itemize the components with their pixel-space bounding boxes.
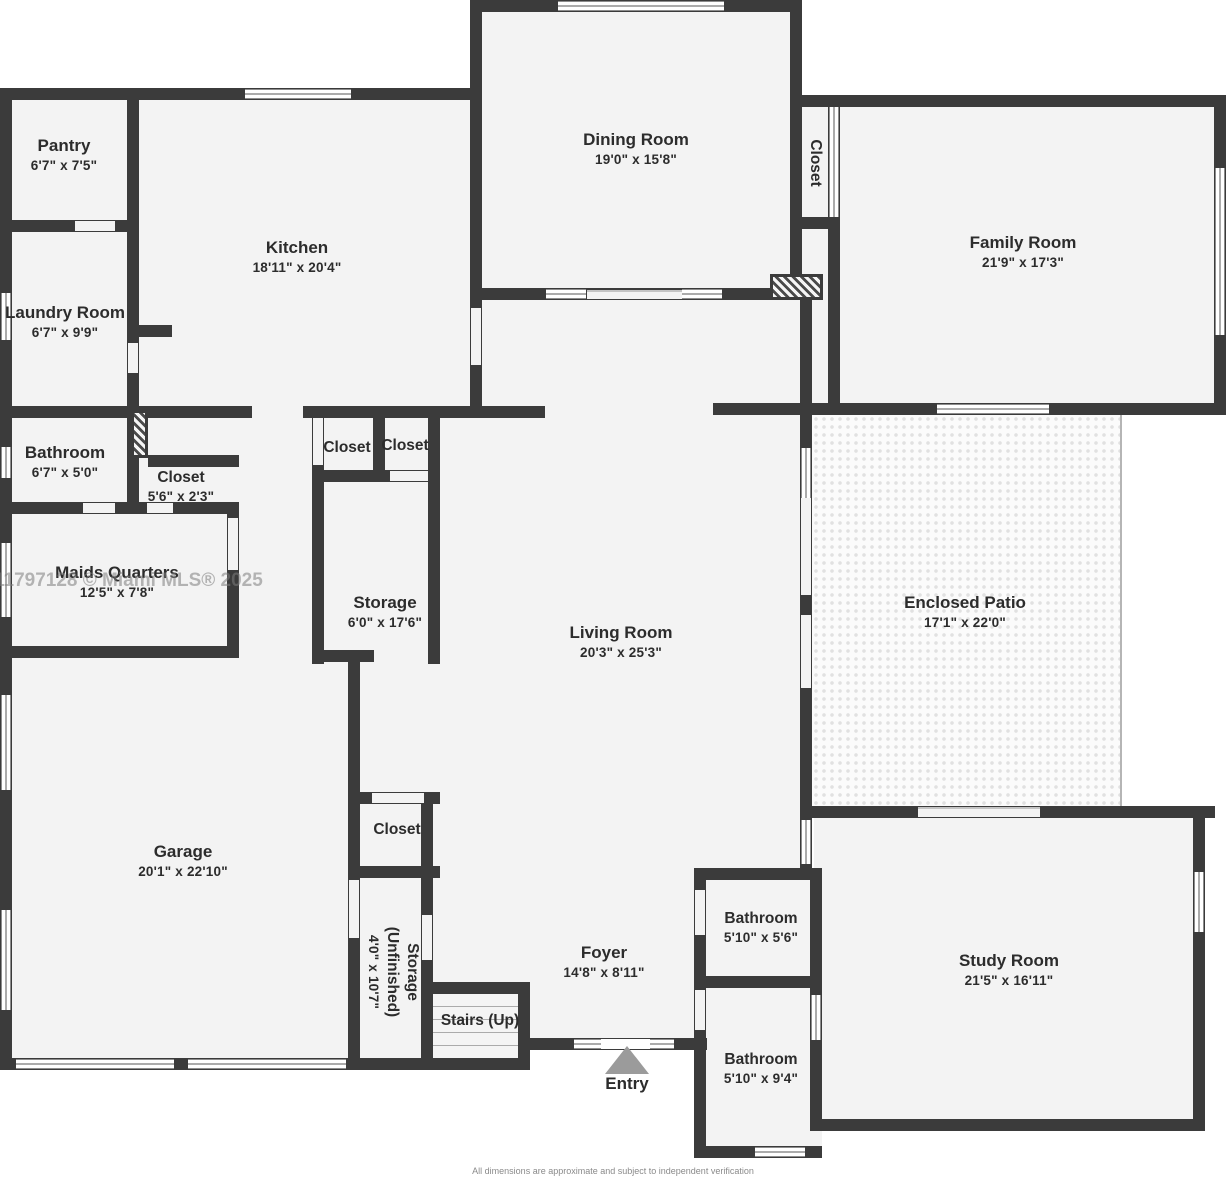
- door-opening: [349, 880, 359, 938]
- room-label-bathroom-1: Bathroom 5'10" x 5'6": [724, 909, 798, 947]
- wall: [0, 406, 252, 418]
- wall: [802, 95, 1226, 107]
- door-opening: [75, 221, 115, 231]
- wall: [810, 1119, 1205, 1131]
- wall: [127, 88, 139, 232]
- door-opening: [422, 915, 432, 960]
- wall: [790, 0, 802, 300]
- wall: [694, 976, 822, 988]
- room-label-family: Family Room 21'9" x 17'3": [970, 232, 1077, 272]
- door-opening: [252, 407, 303, 417]
- floor-plan: Pantry 6'7" x 7'5" Kitchen 18'11" x 20'4…: [0, 0, 1226, 1182]
- room-label-foyer: Foyer 14'8" x 8'11": [563, 942, 644, 982]
- garage-door: [16, 1059, 174, 1069]
- door-opening: [372, 793, 424, 803]
- wall: [518, 982, 530, 1070]
- door-opening: [471, 308, 481, 365]
- window: [245, 89, 351, 99]
- room-label-storage: Storage 6'0" x 17'6": [348, 592, 422, 632]
- room-label-kitchen: Kitchen 18'11" x 20'4": [253, 237, 342, 277]
- wall: [312, 470, 324, 664]
- door-opening: [801, 615, 811, 688]
- entry-arrow-icon: [605, 1046, 649, 1074]
- wall: [1193, 806, 1205, 1131]
- room-label-patio: Enclosed Patio 17'1" x 22'0": [904, 592, 1026, 632]
- room-label-stairs: Stairs (Up): [441, 1011, 519, 1031]
- door-opening: [228, 518, 238, 570]
- room-label-garage: Garage 20'1" x 22'10": [138, 841, 228, 881]
- door: [546, 289, 586, 299]
- wall: [0, 220, 139, 232]
- entry-door: [574, 1039, 601, 1049]
- window: [1194, 872, 1204, 932]
- wall: [0, 88, 482, 100]
- room-label-living: Living Room 20'3" x 25'3": [570, 622, 673, 662]
- wall: [148, 455, 239, 467]
- wall: [303, 406, 545, 418]
- door-opening: [313, 418, 323, 465]
- wide-opening: [587, 290, 682, 299]
- wall: [428, 406, 440, 664]
- door-opening: [83, 503, 115, 513]
- window: [1, 447, 11, 478]
- fireplace-hatch: [770, 274, 823, 300]
- room-label-dining: Dining Room 19'0" x 15'8": [583, 129, 689, 169]
- room-label-closet-b: Closet: [381, 436, 428, 456]
- door-opening: [695, 890, 705, 935]
- door: [811, 995, 821, 1040]
- window: [1, 910, 11, 1010]
- window: [801, 448, 811, 498]
- patio-edge-line: [1120, 415, 1122, 806]
- door-opening: [128, 343, 138, 373]
- window: [801, 820, 811, 864]
- room-label-storage-unfinished: Storage (Unfinished) 4'0" x 10'7": [364, 927, 422, 1017]
- window: [558, 1, 724, 11]
- wide-opening: [918, 807, 1040, 817]
- room-label-closet-a: Closet: [323, 438, 370, 458]
- room-label-bathroom-left: Bathroom 6'7" x 5'0": [25, 442, 105, 482]
- wall: [127, 220, 139, 418]
- room-label-study: Study Room 21'5" x 16'11": [959, 950, 1059, 990]
- garage-door: [188, 1059, 346, 1069]
- door: [682, 289, 722, 299]
- entry-label: Entry: [605, 1073, 648, 1095]
- wall: [0, 646, 239, 658]
- window: [937, 404, 1049, 414]
- wall: [348, 652, 360, 1070]
- closet-door: [829, 107, 839, 217]
- room-label-dining-closet: Closet: [805, 139, 825, 186]
- room-label-laundry: Laundry Room 6'7" x 9'9": [5, 302, 125, 342]
- watermark: 11797128 © Miami MLS® 2025: [0, 570, 263, 592]
- door-opening: [390, 471, 428, 481]
- window: [1215, 168, 1225, 335]
- wall: [421, 982, 530, 994]
- door-opening: [695, 990, 705, 1030]
- entry-door: [650, 1039, 674, 1049]
- room-label-bathroom-2: Bathroom 5'10" x 9'4": [724, 1050, 798, 1088]
- window: [1, 695, 11, 790]
- room-label-closet-hall: Closet 5'6" x 2'3": [148, 468, 214, 506]
- room-label-pantry: Pantry 6'7" x 7'5": [31, 135, 97, 175]
- chase-hatch: [131, 410, 148, 458]
- door-opening: [801, 498, 811, 595]
- room-label-closet-garage: Closet: [373, 820, 420, 840]
- window: [755, 1147, 805, 1157]
- disclaimer: All dimensions are approximate and subje…: [472, 1166, 754, 1176]
